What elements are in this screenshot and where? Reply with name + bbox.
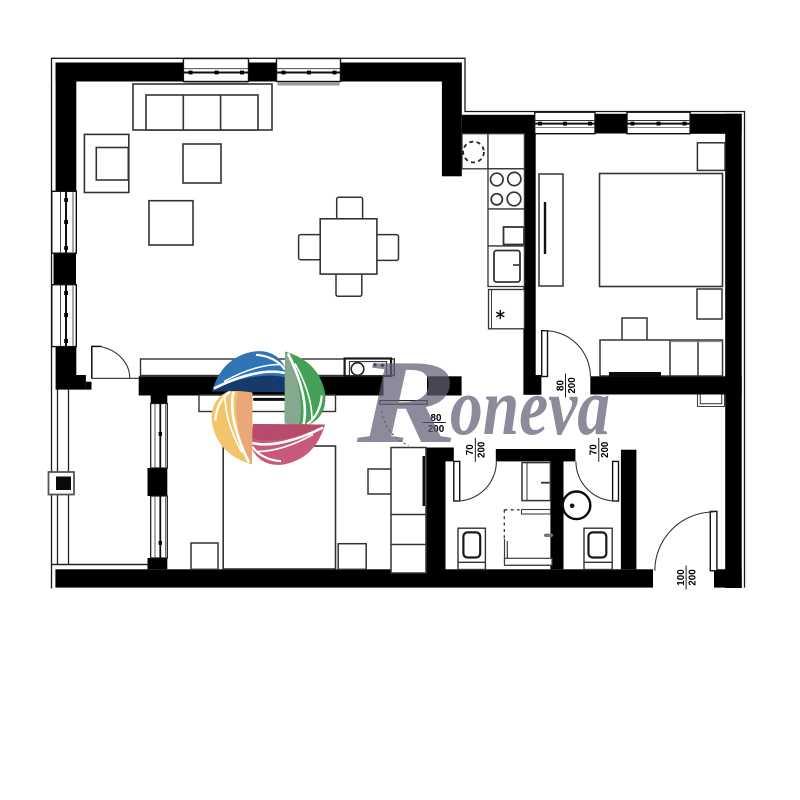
- svg-text:R: R: [356, 335, 457, 468]
- svg-text:200: 200: [687, 569, 698, 586]
- svg-text:100: 100: [676, 569, 687, 586]
- svg-text:oneva: oneva: [450, 361, 610, 452]
